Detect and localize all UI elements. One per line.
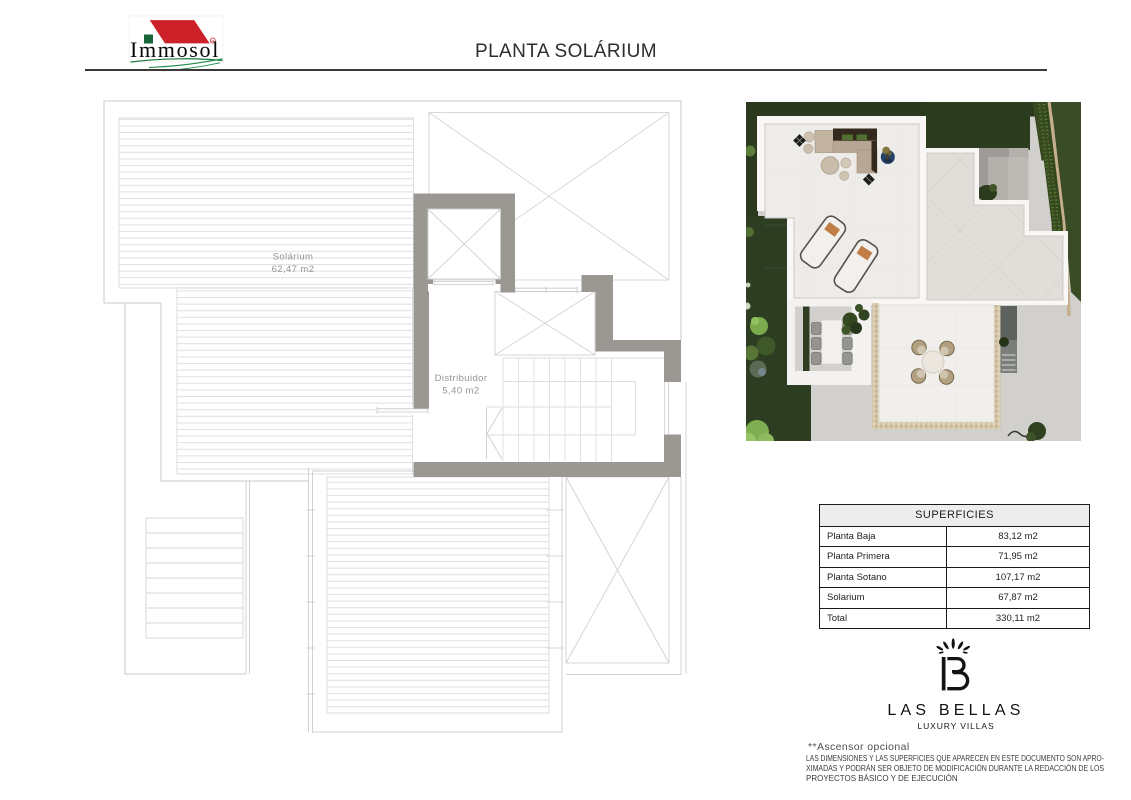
svg-text:Distribuidor: Distribuidor	[435, 373, 488, 384]
svg-text:5,40 m2: 5,40 m2	[442, 386, 479, 397]
svg-text:Solárium: Solárium	[273, 252, 314, 263]
svg-text:62,47 m2: 62,47 m2	[272, 264, 315, 275]
